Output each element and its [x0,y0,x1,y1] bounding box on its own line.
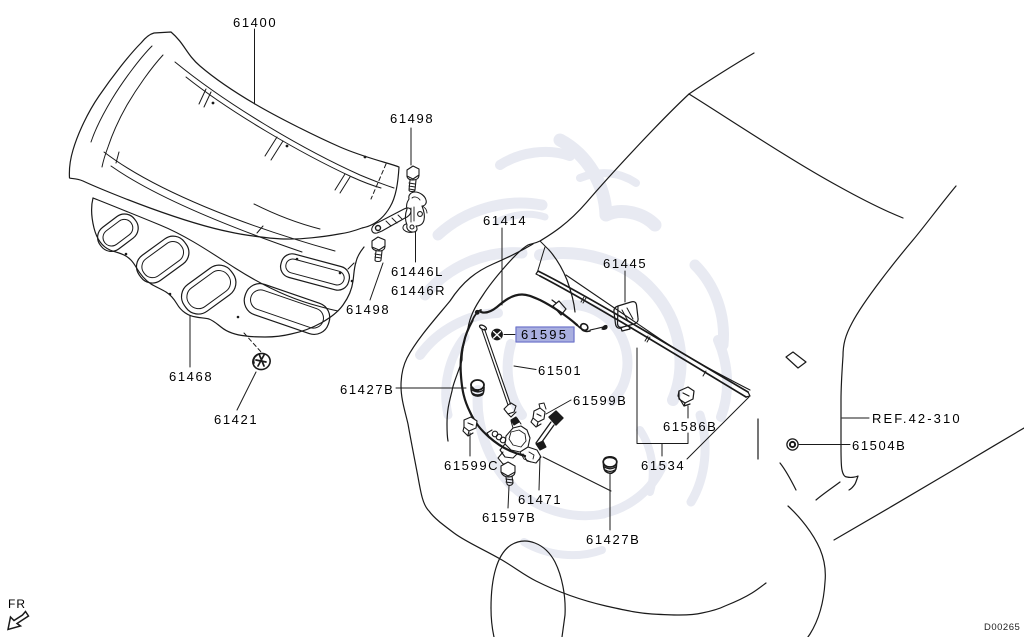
svg-text:61599B: 61599B [573,393,627,408]
svg-text:FR: FR [8,597,26,611]
svg-text:61597B: 61597B [482,510,536,525]
svg-text:61445: 61445 [603,256,647,271]
svg-text:61599C: 61599C [444,458,499,473]
svg-text:61427B: 61427B [586,532,640,547]
svg-text:61501: 61501 [538,363,582,378]
svg-text:61504B: 61504B [852,438,906,453]
svg-text:61595: 61595 [521,327,568,342]
svg-text:REF.42-310: REF.42-310 [872,411,962,426]
svg-text:61414: 61414 [483,213,527,228]
svg-text:61468: 61468 [169,369,213,384]
svg-text:61534: 61534 [641,458,685,473]
svg-text:D00265: D00265 [984,622,1020,633]
svg-text:61446R: 61446R [391,283,446,298]
svg-text:61446L: 61446L [391,264,444,279]
svg-text:61421: 61421 [214,412,258,427]
svg-text:61400: 61400 [233,15,277,30]
svg-text:61498: 61498 [346,302,390,317]
svg-text:61586B: 61586B [663,419,717,434]
svg-text:61427B: 61427B [340,382,394,397]
svg-text:61471: 61471 [518,492,562,507]
svg-text:61498: 61498 [390,111,434,126]
